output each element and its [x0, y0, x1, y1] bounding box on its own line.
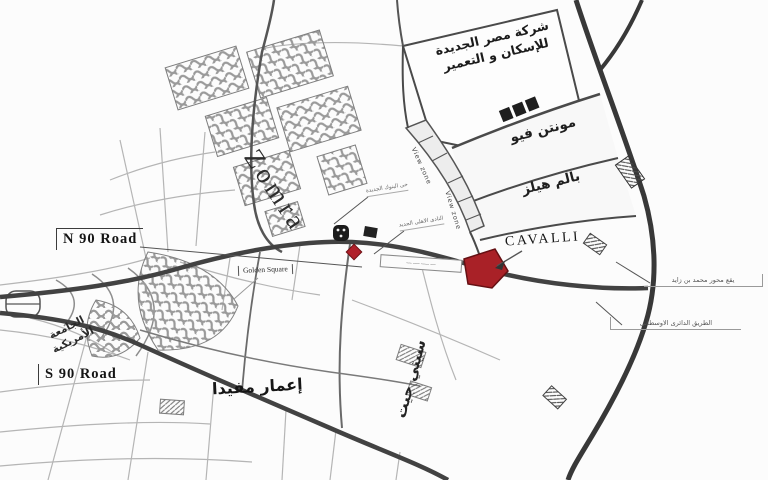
black-building-mark	[363, 226, 378, 238]
dark-landmark-logo-icon	[333, 225, 349, 241]
n90-road-path	[0, 242, 648, 297]
map-canvas: شركة مصر الجديدة للإسكان و التعمير مونتن…	[0, 0, 768, 480]
golden-square-label: Golden Square	[238, 264, 293, 276]
ring-road-highway	[568, 0, 654, 480]
middle-ring-road-callout: الطريق الدائرى الاوسطانى	[610, 317, 741, 330]
mbz-axis-callout: يقع محور محمد بن زايد	[644, 274, 763, 287]
s90-road-label: S 90 Road	[38, 364, 123, 385]
highway-north-branch	[600, 0, 642, 70]
n90-road-label: N 90 Road	[56, 228, 143, 250]
